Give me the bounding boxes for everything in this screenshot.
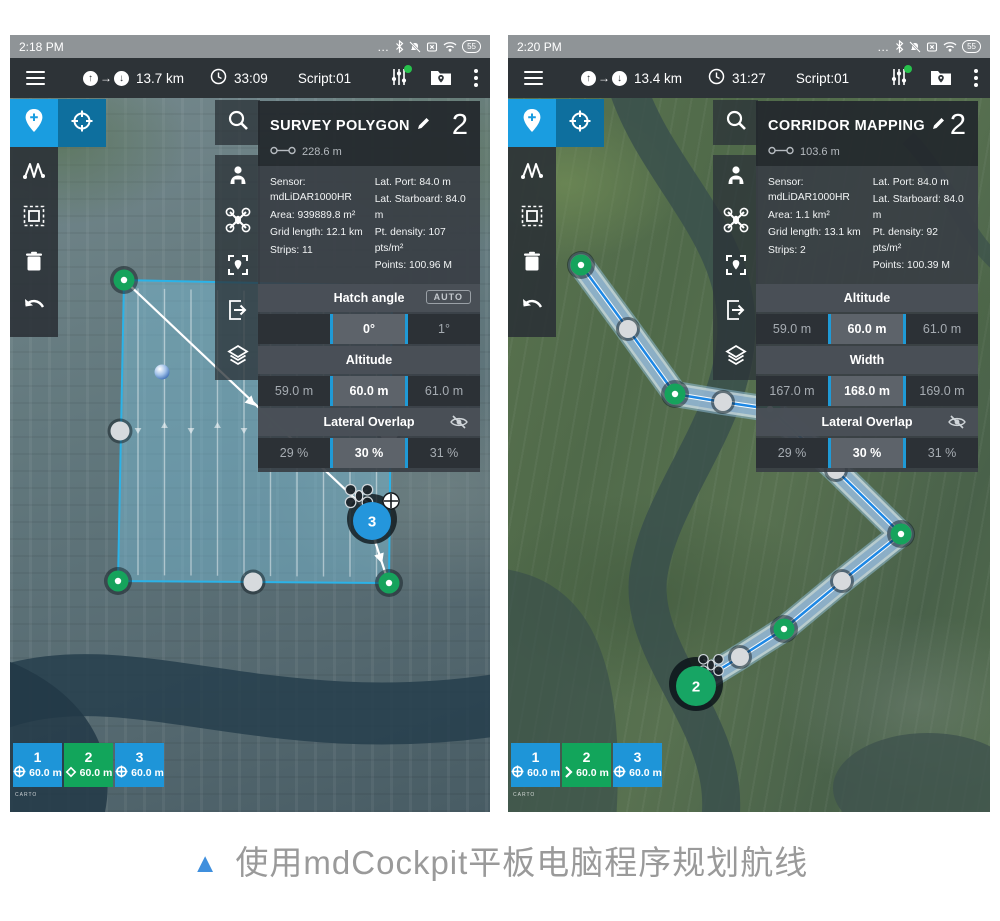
menu-button[interactable] bbox=[524, 71, 543, 86]
app-toolbar: ↑→↓ 13.7 km 33:09 Script:01 bbox=[10, 58, 490, 98]
panel-info-line: Sensor: mdLiDAR1000HR bbox=[270, 175, 365, 206]
add-waypoint-button[interactable] bbox=[10, 99, 58, 147]
fit-view-button[interactable] bbox=[713, 245, 758, 290]
corridor-vertex-marker[interactable] bbox=[770, 615, 798, 643]
mission-distance: 13.4 km bbox=[634, 71, 682, 86]
selected-value-cell[interactable]: 60.0 m bbox=[828, 314, 906, 344]
waypoint-count-label: 2 bbox=[950, 111, 966, 140]
param-label: Lateral Overlap bbox=[821, 415, 912, 429]
param-value-stepper: 59.0 m60.0 m61.0 m bbox=[756, 314, 978, 344]
person-icon bbox=[725, 164, 747, 191]
param-label: Width bbox=[850, 353, 885, 367]
selected-value-cell[interactable]: 168.0 m bbox=[828, 376, 906, 406]
map-corridor[interactable]: 2 bbox=[508, 98, 990, 812]
panel-info-line: Lat. Starboard: 84.0 m bbox=[873, 192, 966, 223]
mute-icon bbox=[409, 41, 421, 53]
export-icon bbox=[227, 299, 249, 326]
param-value-stepper: 0°1° bbox=[258, 314, 480, 344]
param-label-row: Hatch angleAUTO bbox=[258, 284, 480, 312]
crosshair-icon bbox=[115, 765, 128, 781]
survey-icon bbox=[22, 160, 46, 187]
corridor-vertex-marker[interactable] bbox=[887, 520, 915, 548]
mission-settings-button[interactable] bbox=[390, 68, 408, 89]
map-controls bbox=[215, 100, 260, 380]
wifi-icon bbox=[443, 41, 457, 52]
spacing-icon bbox=[270, 146, 296, 158]
waypoint-number: 3 bbox=[634, 749, 642, 765]
caption-triangle-icon: ▲ bbox=[192, 848, 220, 878]
waypoint-info: 60.0 m bbox=[564, 766, 609, 781]
panel-info-line: Strips: 2 bbox=[768, 243, 863, 258]
select-area-button[interactable] bbox=[508, 196, 556, 241]
panel-info-column: Sensor: mdLiDAR1000HRArea: 1.1 km²Grid l… bbox=[768, 175, 863, 274]
pin-plus-icon bbox=[521, 108, 543, 139]
bluetooth-icon bbox=[895, 40, 904, 53]
corridor-midpoint-handle[interactable] bbox=[711, 390, 735, 414]
export-panel-button[interactable] bbox=[713, 290, 758, 335]
param-value-stepper: 29 %30 %31 % bbox=[258, 438, 480, 468]
next-value-cell[interactable]: 61.0 m bbox=[408, 376, 480, 406]
add-poi-button[interactable] bbox=[556, 99, 604, 147]
layers-button[interactable] bbox=[713, 335, 758, 380]
takeoff-landing-icon: ↑→↓ bbox=[83, 71, 129, 86]
edit-icon[interactable] bbox=[932, 117, 945, 135]
delete-button[interactable] bbox=[508, 241, 556, 286]
param-group: Width167.0 m168.0 m169.0 m bbox=[756, 346, 978, 406]
mission-duration: 31:27 bbox=[732, 71, 766, 86]
crosshair-icon bbox=[511, 765, 524, 781]
app-toolbar: ↑→↓ 13.4 km 31:27 Script:01 bbox=[508, 58, 990, 98]
expand-pin-icon bbox=[226, 253, 250, 282]
panel-info-line: Points: 100.96 M bbox=[375, 258, 468, 273]
panel-info-line: Pt. density: 92 pts/m² bbox=[873, 225, 966, 256]
next-value-cell[interactable]: 61.0 m bbox=[906, 314, 978, 344]
param-label: Altitude bbox=[844, 291, 891, 305]
waypoint-altitude: 60.0 m bbox=[629, 767, 662, 779]
waypoint-info: 60.0 m bbox=[65, 766, 113, 781]
panel-info-column: Lat. Port: 84.0 mLat. Starboard: 84.0 mP… bbox=[375, 175, 468, 274]
polygon-vertex-marker[interactable] bbox=[375, 569, 403, 597]
mute-icon bbox=[909, 41, 921, 53]
crosshair-plus-icon bbox=[70, 109, 94, 138]
panel-params: Hatch angleAUTO0°1°Altitude59.0 m60.0 m6… bbox=[258, 284, 480, 472]
ellipsis-icon: … bbox=[377, 40, 390, 54]
panel-info-line: Pt. density: 107 pts/m² bbox=[375, 225, 468, 256]
settings-status-dot bbox=[904, 65, 912, 73]
selected-value-cell[interactable]: 0° bbox=[330, 314, 408, 344]
map-controls bbox=[713, 100, 758, 380]
mission-panel: CORRIDOR MAPPING 2 103.6 m Sensor: mdLiD… bbox=[756, 101, 978, 472]
drone-icon bbox=[723, 207, 749, 238]
panel-info-line: Sensor: mdLiDAR1000HR bbox=[768, 175, 863, 206]
polygon-vertex-marker[interactable] bbox=[110, 266, 138, 294]
status-time: 2:20 PM bbox=[517, 40, 562, 54]
trash-icon bbox=[523, 251, 541, 277]
panel-info-line: Strips: 11 bbox=[270, 243, 365, 258]
prev-value-cell[interactable]: 29 % bbox=[756, 438, 828, 468]
crosshair-badge-icon bbox=[383, 493, 399, 509]
panel-info-line: Area: 939889.8 m² bbox=[270, 208, 365, 223]
settings-status-dot bbox=[404, 65, 412, 73]
battery-indicator: 55 bbox=[462, 40, 481, 53]
selected-value-cell[interactable]: 30 % bbox=[330, 438, 408, 468]
search-icon bbox=[227, 109, 249, 136]
waypoint-button-2[interactable]: 260.0 m bbox=[562, 743, 611, 787]
pin-plus-icon bbox=[23, 108, 45, 139]
corridor-vertex-marker[interactable] bbox=[661, 380, 689, 408]
figure-caption: ▲使用mdCockpit平板电脑程序规划航线 bbox=[0, 836, 1000, 884]
status-time: 2:18 PM bbox=[19, 40, 64, 54]
fit-view-button[interactable] bbox=[215, 245, 260, 290]
param-label-row: Altitude bbox=[258, 346, 480, 374]
param-label: Altitude bbox=[346, 353, 393, 367]
crosshair-icon bbox=[613, 765, 626, 781]
menu-button[interactable] bbox=[26, 71, 45, 86]
export-panel-button[interactable] bbox=[215, 290, 260, 335]
param-value-stepper: 29 %30 %31 % bbox=[756, 438, 978, 468]
attribution-label: CARTO bbox=[15, 792, 37, 798]
survey-icon bbox=[520, 160, 544, 187]
trash-icon bbox=[25, 251, 43, 277]
waypoint-list: 160.0 m260.0 m360.0 m bbox=[511, 743, 662, 787]
add-poi-button[interactable] bbox=[58, 99, 106, 147]
waypoint-info: 60.0 m bbox=[511, 765, 560, 781]
drone-locate-button[interactable] bbox=[215, 200, 260, 245]
corridor-midpoint-handle[interactable] bbox=[616, 317, 640, 341]
takeoff-landing-icon: ↑→↓ bbox=[581, 71, 627, 86]
next-value-cell[interactable]: 1° bbox=[408, 314, 480, 344]
corridor-midpoint-handle[interactable] bbox=[728, 645, 752, 669]
clock-icon bbox=[210, 68, 227, 88]
drone-icon bbox=[225, 207, 251, 238]
panel-info: Sensor: mdLiDAR1000HRArea: 939889.8 m²Gr… bbox=[258, 166, 480, 284]
panel-title: CORRIDOR MAPPING bbox=[768, 118, 925, 134]
panel-info-line: Grid length: 12.1 km bbox=[270, 225, 365, 240]
crosshair-plus-icon bbox=[568, 109, 592, 138]
waypoint-altitude: 60.0 m bbox=[29, 767, 62, 779]
panel-info-line: Area: 1.1 km² bbox=[768, 208, 863, 223]
param-label: Lateral Overlap bbox=[323, 415, 414, 429]
undo-button[interactable] bbox=[508, 286, 556, 331]
survey-pattern-button[interactable] bbox=[508, 151, 556, 196]
export-icon bbox=[725, 299, 747, 326]
caption-text: 使用mdCockpit平板电脑程序规划航线 bbox=[235, 844, 808, 881]
param-label-row: Lateral Overlap bbox=[756, 408, 978, 436]
waypoint-number: 1 bbox=[34, 749, 42, 765]
search-icon bbox=[725, 109, 747, 136]
waypoint-button-3[interactable]: 360.0 m bbox=[613, 743, 662, 787]
layers-icon bbox=[724, 343, 748, 372]
svg-text:3: 3 bbox=[368, 514, 376, 531]
waypoint-count-label: 2 bbox=[452, 111, 468, 140]
prev-value-cell[interactable]: 29 % bbox=[258, 438, 330, 468]
sim-missing-icon bbox=[926, 41, 938, 53]
select-area-button[interactable] bbox=[10, 196, 58, 241]
panel-title: SURVEY POLYGON bbox=[270, 118, 410, 134]
survey-pattern-button[interactable] bbox=[10, 151, 58, 196]
poi-sphere[interactable] bbox=[155, 365, 170, 380]
param-label-row: Altitude bbox=[756, 284, 978, 312]
param-group: Altitude59.0 m60.0 m61.0 m bbox=[756, 284, 978, 344]
status-bar: 2:20 PM … 55 bbox=[508, 35, 990, 58]
panel-header: CORRIDOR MAPPING 2 103.6 m bbox=[756, 101, 978, 166]
waypoint-button-1[interactable]: 160.0 m bbox=[13, 743, 62, 787]
param-group: Lateral Overlap29 %30 %31 % bbox=[756, 408, 978, 468]
panel-info-column: Sensor: mdLiDAR1000HRArea: 939889.8 m²Gr… bbox=[270, 175, 365, 274]
marquee-icon bbox=[23, 205, 45, 232]
panel-info-line: Lat. Port: 84.0 m bbox=[375, 175, 468, 190]
screenshot-left: 2:18 PM … 55 ↑→↓ 13.7 km 33:09 bbox=[10, 35, 490, 812]
param-group: Lateral Overlap29 %30 %31 % bbox=[258, 408, 480, 468]
waypoint-altitude: 60.0 m bbox=[576, 767, 609, 779]
param-group: Hatch angleAUTO0°1° bbox=[258, 284, 480, 344]
param-value-stepper: 59.0 m60.0 m61.0 m bbox=[258, 376, 480, 406]
script-label: Script:01 bbox=[298, 71, 351, 86]
pilot-location-button[interactable] bbox=[713, 155, 758, 200]
panel-info: Sensor: mdLiDAR1000HRArea: 1.1 km²Grid l… bbox=[756, 166, 978, 284]
person-icon bbox=[227, 164, 249, 191]
panel-info-line: Grid length: 13.1 km bbox=[768, 225, 863, 240]
waypoint-altitude: 60.0 m bbox=[527, 767, 560, 779]
waypoint-number: 2 bbox=[583, 749, 591, 765]
panel-info-column: Lat. Port: 84.0 mLat. Starboard: 84.0 mP… bbox=[873, 175, 966, 274]
auto-badge: AUTO bbox=[426, 290, 471, 304]
edge-midpoint-handle[interactable] bbox=[108, 419, 133, 444]
edit-tools-sidebar bbox=[10, 147, 58, 337]
chevron-icon bbox=[564, 766, 573, 781]
add-waypoint-button[interactable] bbox=[508, 99, 556, 147]
mission-panel: SURVEY POLYGON 2 228.6 m Sensor: mdLiDAR… bbox=[258, 101, 480, 472]
diamond-icon bbox=[65, 766, 77, 781]
param-value-stepper: 167.0 m168.0 m169.0 m bbox=[756, 376, 978, 406]
param-group: Altitude59.0 m60.0 m61.0 m bbox=[258, 346, 480, 406]
prev-value-cell[interactable]: 59.0 m bbox=[258, 376, 330, 406]
river bbox=[10, 685, 490, 713]
edge-midpoint-handle[interactable] bbox=[241, 570, 266, 595]
waypoint-altitude: 60.0 m bbox=[80, 767, 113, 779]
attribution-label: CARTO bbox=[513, 792, 535, 798]
edit-icon[interactable] bbox=[417, 117, 430, 135]
undo-button[interactable] bbox=[10, 286, 58, 331]
polygon-vertex-marker[interactable] bbox=[104, 567, 132, 595]
next-value-cell[interactable]: 169.0 m bbox=[906, 376, 978, 406]
overflow-menu-button[interactable] bbox=[974, 69, 978, 87]
visibility-off-icon[interactable] bbox=[948, 415, 966, 432]
spacing-icon bbox=[768, 146, 794, 158]
panel-info-line: Lat. Starboard: 84.0 m bbox=[375, 192, 468, 223]
waypoint-button-3[interactable]: 360.0 m bbox=[115, 743, 164, 787]
project-folder-button[interactable] bbox=[930, 68, 952, 89]
next-value-cell[interactable]: 31 % bbox=[906, 438, 978, 468]
spacing-value: 103.6 m bbox=[800, 146, 840, 158]
clock-icon bbox=[708, 68, 725, 88]
script-label: Script:01 bbox=[796, 71, 849, 86]
mission-settings-button[interactable] bbox=[890, 68, 908, 89]
prev-value-cell[interactable]: 167.0 m bbox=[756, 376, 828, 406]
undo-icon bbox=[520, 297, 544, 320]
waypoint-info: 60.0 m bbox=[13, 765, 62, 781]
panel-header: SURVEY POLYGON 2 228.6 m bbox=[258, 101, 480, 166]
undo-icon bbox=[22, 297, 46, 320]
prev-value-cell[interactable] bbox=[258, 314, 330, 344]
mission-distance: 13.7 km bbox=[136, 71, 184, 86]
waypoint-number: 3 bbox=[136, 749, 144, 765]
edit-tools-sidebar bbox=[508, 147, 556, 337]
bluetooth-icon bbox=[395, 40, 404, 53]
next-value-cell[interactable]: 31 % bbox=[408, 438, 480, 468]
waypoint-button-1[interactable]: 160.0 m bbox=[511, 743, 560, 787]
layers-button[interactable] bbox=[215, 335, 260, 380]
project-folder-button[interactable] bbox=[430, 68, 452, 89]
panel-params: Altitude59.0 m60.0 m61.0 mWidth167.0 m16… bbox=[756, 284, 978, 472]
delete-button[interactable] bbox=[10, 241, 58, 286]
param-label: Hatch angle bbox=[334, 291, 405, 305]
panel-info-line: Points: 100.39 M bbox=[873, 258, 966, 273]
selected-value-cell[interactable]: 60.0 m bbox=[330, 376, 408, 406]
corridor-midpoint-handle[interactable] bbox=[830, 569, 854, 593]
drone-locate-button[interactable] bbox=[713, 200, 758, 245]
screenshot-right: 2:20 PM … 55 ↑→↓ 13.4 km 31:27 bbox=[508, 35, 990, 812]
waypoint-list: 160.0 m260.0 m360.0 m bbox=[13, 743, 164, 787]
layers-icon bbox=[226, 343, 250, 372]
status-bar: 2:18 PM … 55 bbox=[10, 35, 490, 58]
search-button[interactable] bbox=[215, 100, 260, 145]
panel-info-line: Lat. Port: 84.0 m bbox=[873, 175, 966, 190]
wifi-icon bbox=[943, 41, 957, 52]
pilot-location-button[interactable] bbox=[215, 155, 260, 200]
waypoint-altitude: 60.0 m bbox=[131, 767, 164, 779]
mission-duration: 33:09 bbox=[234, 71, 268, 86]
svg-text:2: 2 bbox=[692, 679, 700, 696]
waypoint-button-2[interactable]: 260.0 m bbox=[64, 743, 113, 787]
prev-value-cell[interactable]: 59.0 m bbox=[756, 314, 828, 344]
selected-value-cell[interactable]: 30 % bbox=[828, 438, 906, 468]
marquee-icon bbox=[521, 205, 543, 232]
waypoint-info: 60.0 m bbox=[613, 765, 662, 781]
waypoint-number: 1 bbox=[532, 749, 540, 765]
corridor-vertex-marker[interactable] bbox=[567, 251, 595, 279]
overflow-menu-button[interactable] bbox=[474, 69, 478, 87]
ellipsis-icon: … bbox=[877, 40, 890, 54]
expand-pin-icon bbox=[724, 253, 748, 282]
waypoint-info: 60.0 m bbox=[115, 765, 164, 781]
sim-missing-icon bbox=[426, 41, 438, 53]
map-survey[interactable]: 3 bbox=[10, 98, 490, 812]
lake bbox=[833, 733, 990, 812]
battery-indicator: 55 bbox=[962, 40, 981, 53]
crosshair-icon bbox=[13, 765, 26, 781]
waypoint-number: 2 bbox=[85, 749, 93, 765]
search-button[interactable] bbox=[713, 100, 758, 145]
param-label-row: Lateral Overlap bbox=[258, 408, 480, 436]
spacing-value: 228.6 m bbox=[302, 146, 342, 158]
visibility-off-icon[interactable] bbox=[450, 415, 468, 432]
page: 2:18 PM … 55 ↑→↓ 13.7 km 33:09 bbox=[0, 0, 1000, 921]
param-label-row: Width bbox=[756, 346, 978, 374]
